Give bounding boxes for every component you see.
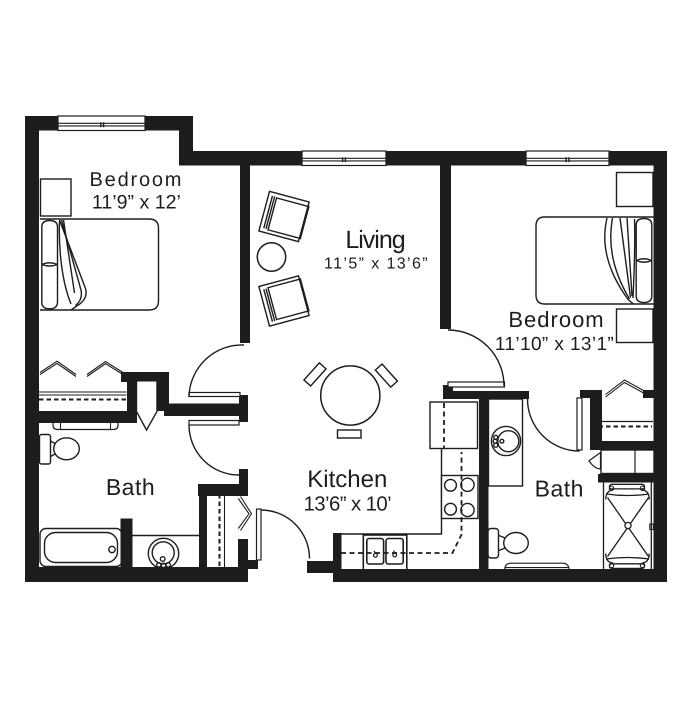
svg-text:Living: Living bbox=[345, 226, 404, 254]
svg-text:11’10” x 13’1”: 11’10” x 13’1” bbox=[495, 334, 614, 355]
svg-text:Bedroom: Bedroom bbox=[90, 169, 184, 191]
svg-text:13’6” x 10’: 13’6” x 10’ bbox=[304, 494, 392, 516]
svg-text:Kitchen: Kitchen bbox=[307, 466, 387, 493]
svg-text:Bath: Bath bbox=[106, 474, 155, 500]
svg-text:Bedroom: Bedroom bbox=[508, 307, 604, 332]
svg-text:11’5” x 13’6”: 11’5” x 13’6” bbox=[324, 255, 429, 272]
svg-text:Bath: Bath bbox=[535, 476, 584, 502]
svg-text:11’9” x 12’: 11’9” x 12’ bbox=[92, 192, 181, 214]
